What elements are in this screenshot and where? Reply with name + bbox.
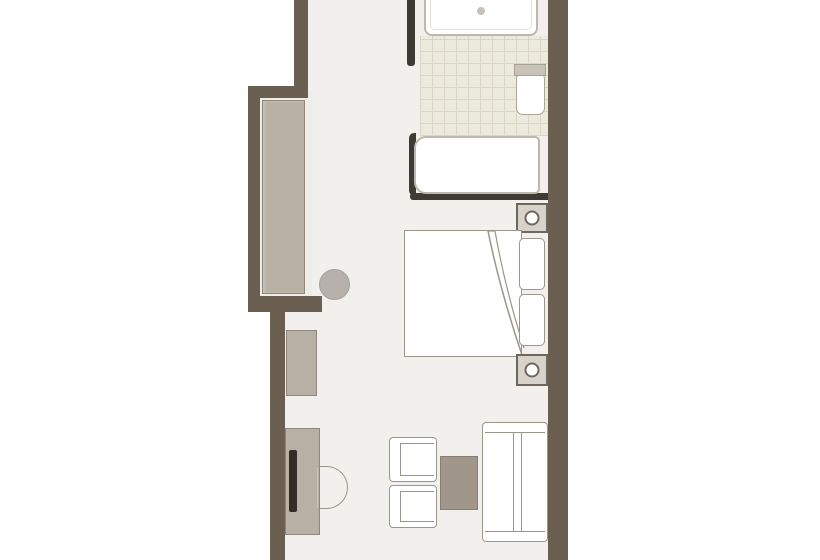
wardrobe	[262, 100, 305, 294]
shower-tray-inner-line	[430, 0, 532, 30]
pillow	[519, 238, 545, 290]
bedside-lamp-icon	[525, 211, 540, 226]
pillow	[519, 294, 545, 346]
bathtub-icon	[414, 136, 540, 194]
bathroom-partition-wall	[407, 0, 415, 66]
coffee-table	[440, 456, 478, 510]
wall-right	[548, 0, 568, 560]
wall-top-left	[294, 0, 308, 92]
tv-panel-icon	[289, 450, 297, 512]
nightstand-top	[516, 203, 548, 233]
armchair-inner-line	[400, 443, 434, 476]
shower-tray-icon	[424, 0, 538, 36]
armchair	[389, 437, 437, 482]
toilet-icon	[516, 75, 545, 115]
bathroom-bedroom-divider	[410, 193, 548, 200]
floor-plan	[0, 0, 820, 560]
sofa-backrest-line	[513, 433, 522, 531]
sofa-armrest-line	[485, 531, 545, 532]
nightstand-bottom	[516, 354, 548, 386]
wall-alcove-bottom	[248, 296, 322, 312]
minibar-cabinet	[286, 330, 317, 396]
shower-drain-icon	[477, 7, 485, 15]
armchair	[389, 485, 437, 528]
wall-alcove-left	[248, 86, 260, 308]
stool-icon	[319, 269, 350, 300]
bed	[404, 230, 522, 357]
sofa	[482, 422, 548, 542]
wall-left-lower	[270, 302, 285, 560]
armchair-inner-line	[400, 491, 434, 522]
bedside-lamp-icon	[525, 363, 540, 378]
